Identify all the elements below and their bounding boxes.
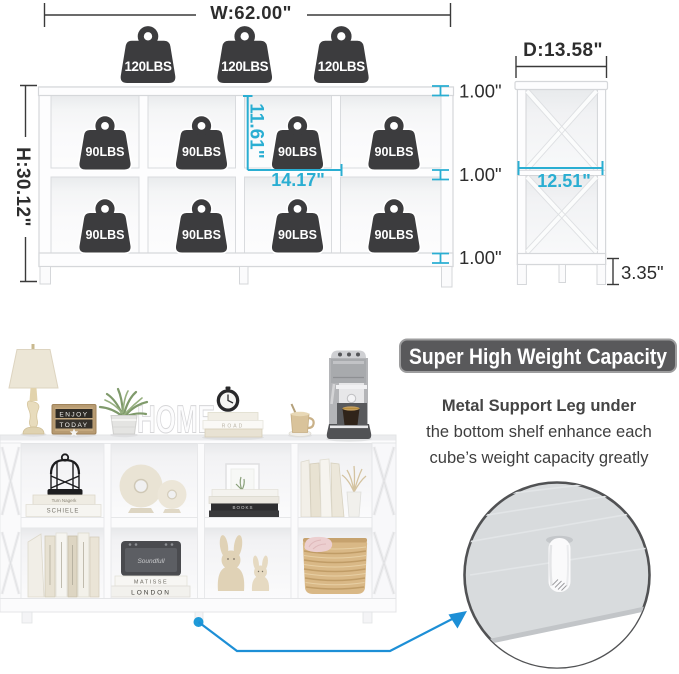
svg-text:Metal Support Leg under: Metal Support Leg under: [442, 397, 637, 415]
svg-text:ENJOY: ENJOY: [59, 412, 88, 419]
svg-text:14.17": 14.17": [271, 170, 325, 190]
svg-text:1.00": 1.00": [459, 81, 502, 102]
svg-text:11.61": 11.61": [246, 103, 267, 159]
svg-text:H:30.12": H:30.12": [12, 147, 33, 227]
svg-text:MATISSE: MATISSE: [134, 580, 168, 586]
svg-text:Soundfull: Soundfull: [137, 558, 165, 565]
svg-text:12.51": 12.51": [537, 171, 591, 191]
svg-text:Turn Nagerk: Turn Nagerk: [52, 498, 78, 503]
svg-text:BOOKS: BOOKS: [232, 505, 253, 510]
svg-text:W:62.00": W:62.00": [210, 2, 292, 23]
svg-text:D:13.58": D:13.58": [523, 40, 603, 61]
svg-text:1.00": 1.00": [459, 164, 502, 185]
svg-text:LONDON: LONDON: [131, 590, 171, 597]
svg-text:cube’s weight capacity greatly: cube’s weight capacity greatly: [430, 449, 650, 467]
svg-text:SCHIELE: SCHIELE: [47, 509, 80, 515]
svg-text:Super High Weight Capacity: Super High Weight Capacity: [409, 344, 668, 369]
svg-text:1.00": 1.00": [459, 247, 502, 268]
svg-text:the bottom shelf enhance each: the bottom shelf enhance each: [426, 423, 652, 441]
svg-text:3.35": 3.35": [621, 262, 664, 283]
svg-text:TODAY: TODAY: [59, 422, 88, 429]
